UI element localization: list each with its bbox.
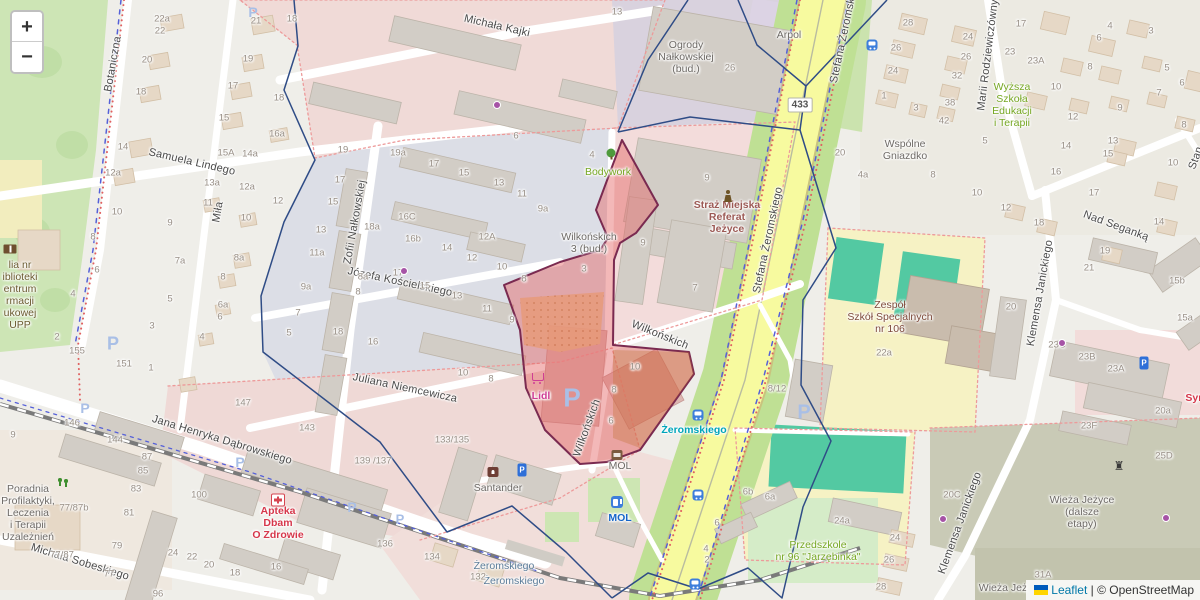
leaflet-map[interactable]: Michała KajkiSamuela LindegoZofii Nałkow… xyxy=(0,0,1200,600)
osm-attribution: OpenStreetMap xyxy=(1109,583,1194,597)
zoom-in-button[interactable]: + xyxy=(12,12,42,42)
map-canvas xyxy=(0,0,1200,600)
attribution-bar: Leaflet | © OpenStreetMap xyxy=(1026,580,1200,600)
zoom-out-button[interactable]: − xyxy=(12,42,42,72)
attribution-separator: | © xyxy=(1087,583,1109,597)
ukraine-flag-icon xyxy=(1034,585,1048,595)
leaflet-link[interactable]: Leaflet xyxy=(1051,583,1087,597)
zoom-control: + − xyxy=(10,10,44,74)
